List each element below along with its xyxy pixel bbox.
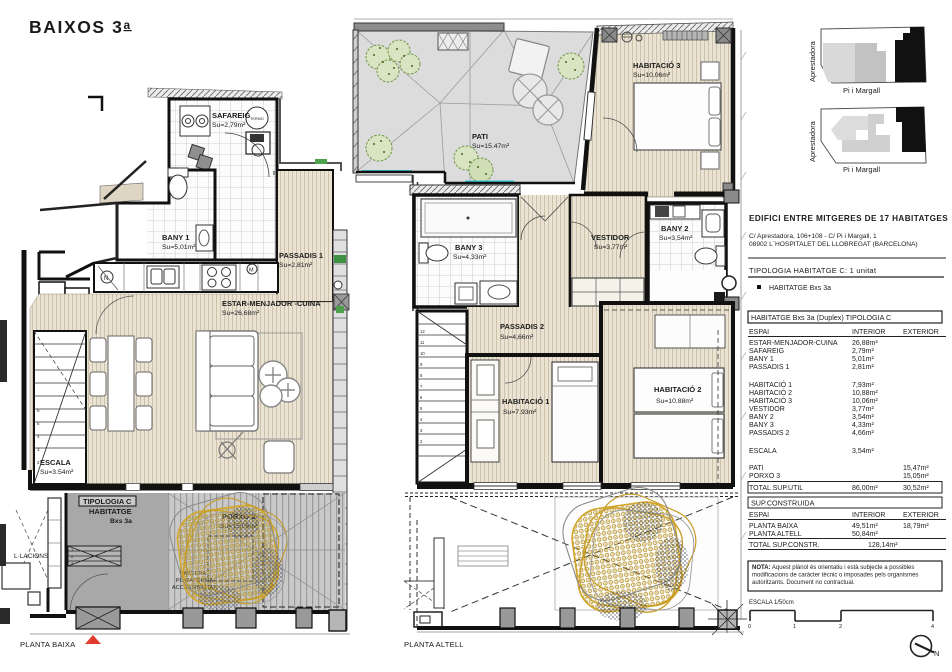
svg-text:ESPAI: ESPAI	[749, 329, 769, 336]
svg-text:SAFAREIG: SAFAREIG	[749, 348, 784, 355]
svg-text:N: N	[934, 649, 939, 658]
svg-text:PASSADIS 1: PASSADIS 1	[749, 364, 789, 371]
svg-text:4: 4	[931, 624, 934, 630]
svg-text:BANY 3: BANY 3	[749, 422, 774, 429]
svg-text:C/ Aprestadora, 106+108 - C/ P: C/ Aprestadora, 106+108 - C/ Pi i Margal…	[749, 233, 877, 240]
svg-text:HABITATGE Bxs 3a (Duplex) TIPO: HABITATGE Bxs 3a (Duplex) TIPOLOGIA C	[751, 313, 891, 322]
svg-text:HABITATGE: HABITATGE	[89, 507, 132, 516]
svg-text:BANY 2: BANY 2	[749, 414, 774, 421]
svg-text:TOTAL SUP.UTIL: TOTAL SUP.UTIL	[749, 485, 803, 492]
svg-text:10,06m²: 10,06m²	[852, 398, 878, 405]
svg-text:modificacions de caràcter tècn: modificacions de caràcter tècnic o impos…	[752, 573, 918, 579]
svg-text:5,01m²: 5,01m²	[852, 356, 874, 363]
svg-text:BANY 1: BANY 1	[162, 233, 189, 242]
svg-text:18,79m²: 18,79m²	[903, 523, 929, 530]
svg-text:HABITACIÓ 2: HABITACIÓ 2	[749, 388, 792, 397]
svg-text:0: 0	[748, 624, 751, 630]
svg-text:PORXO 3: PORXO 3	[749, 473, 780, 480]
svg-text:7,93m²: 7,93m²	[852, 382, 874, 389]
svg-text:EXTERIOR: EXTERIOR	[903, 512, 939, 519]
svg-text:1: 1	[793, 624, 796, 630]
svg-text:ESCALA 1/50cm: ESCALA 1/50cm	[749, 600, 794, 606]
svg-text:Su=3.54m²: Su=3.54m²	[40, 469, 74, 476]
svg-text:15,47m²: 15,47m²	[903, 465, 929, 472]
svg-text:TIPOLOGIA HABITATGE C: 1 unita: TIPOLOGIA HABITATGE C: 1 unitat	[749, 266, 876, 275]
svg-text:HABITATGE Bxs 3a: HABITATGE Bxs 3a	[769, 285, 831, 292]
svg-text:PATI: PATI	[472, 132, 488, 141]
svg-text:BAIXOS 3a: BAIXOS 3a	[29, 17, 132, 37]
svg-text:15,05m²: 15,05m²	[903, 473, 929, 480]
svg-text:PASSADIS 1: PASSADIS 1	[279, 251, 323, 260]
svg-text:26,88m²: 26,88m²	[852, 340, 878, 347]
svg-text:3,77m²: 3,77m²	[852, 406, 874, 413]
svg-text:NOTA: Aquest plànol és orienta: NOTA: Aquest plànol és orientatiu i està…	[752, 565, 914, 571]
svg-text:128,14m²: 128,14m²	[868, 542, 898, 549]
svg-text:INTERIOR: INTERIOR	[852, 512, 885, 519]
svg-text:Su=2,79m²: Su=2,79m²	[212, 122, 246, 129]
svg-text:SAFAREIG: SAFAREIG	[212, 111, 251, 120]
svg-text:50,84m²: 50,84m²	[852, 531, 878, 538]
svg-text:Su=3,54m²: Su=3,54m²	[659, 235, 693, 242]
svg-text:Pi i Margall: Pi i Margall	[843, 165, 880, 174]
svg-text:HABITACIÓ 1: HABITACIÓ 1	[749, 380, 792, 389]
svg-text:BANY 2: BANY 2	[661, 224, 688, 233]
svg-text:HABITACIÓ 1: HABITACIÓ 1	[502, 397, 549, 406]
svg-text:Su=2,81m²: Su=2,81m²	[279, 262, 313, 269]
svg-text:12: 12	[420, 329, 425, 334]
svg-text:3,54m²: 3,54m²	[852, 448, 874, 455]
svg-text:2,81m²: 2,81m²	[852, 364, 874, 371]
svg-text:PLANTA BAIXA: PLANTA BAIXA	[749, 523, 798, 530]
svg-text:M: M	[249, 268, 254, 274]
svg-text:08902 L´HOSPITALET DEL LLOBREG: 08902 L´HOSPITALET DEL LLOBREGAT (BARCEL…	[749, 241, 918, 248]
svg-text:Su=10.88m²: Su=10.88m²	[656, 398, 694, 405]
svg-text:Bxs 3a: Bxs 3a	[110, 518, 132, 525]
svg-text:Su=4,66m²: Su=4,66m²	[500, 334, 534, 341]
svg-text:HABITACIÓ 2: HABITACIÓ 2	[654, 385, 701, 394]
svg-text:PLANTA ALTELL: PLANTA ALTELL	[404, 640, 464, 649]
svg-text:4,66m²: 4,66m²	[852, 430, 874, 437]
svg-text:Aprestadora: Aprestadora	[808, 120, 817, 162]
svg-text:BANY 1: BANY 1	[749, 356, 774, 363]
svg-text:86,00m²: 86,00m²	[852, 485, 878, 492]
svg-text:4,33m²: 4,33m²	[852, 422, 874, 429]
svg-text:TIPOLOGIA C: TIPOLOGIA C	[83, 497, 132, 506]
svg-text:L·LACIONS: L·LACIONS	[14, 553, 49, 560]
svg-text:ESTAR-MENJADOR -CUINA: ESTAR-MENJADOR -CUINA	[222, 299, 321, 308]
svg-text:Su=7.93m²: Su=7.93m²	[503, 409, 537, 416]
svg-text:30,52m²: 30,52m²	[903, 485, 929, 492]
svg-text:ESCALA: ESCALA	[749, 448, 777, 455]
svg-text:Su=26,68m²: Su=26,68m²	[222, 310, 260, 317]
svg-text:BANY 3: BANY 3	[455, 243, 482, 252]
svg-text:Pi i Margall: Pi i Margall	[843, 86, 880, 95]
svg-text:ESPAI: ESPAI	[749, 512, 769, 519]
svg-text:PASSADIS 2: PASSADIS 2	[749, 430, 789, 437]
svg-text:PASSADIS 2: PASSADIS 2	[500, 322, 544, 331]
svg-text:10,88m²: 10,88m²	[852, 390, 878, 397]
svg-text:ESTAR-MENJADOR-CUINA: ESTAR-MENJADOR-CUINA	[749, 340, 838, 347]
svg-text:3,54m²: 3,54m²	[852, 414, 874, 421]
svg-text:TERMO: TERMO	[250, 117, 264, 121]
svg-text:ESCALA: ESCALA	[40, 458, 71, 467]
svg-text:PLANTA ALTELL: PLANTA ALTELL	[749, 531, 802, 538]
svg-text:TOTAL SUP.CONSTR.: TOTAL SUP.CONSTR.	[749, 542, 820, 549]
svg-text:PLANTA BAIXA: PLANTA BAIXA	[20, 640, 76, 649]
svg-text:EDIFICI ENTRE MITGERES DE 17 H: EDIFICI ENTRE MITGERES DE 17 HABITATGES	[749, 214, 948, 223]
svg-text:HABITACIÓ 3: HABITACIÓ 3	[633, 61, 680, 70]
svg-text:EXTERIOR: EXTERIOR	[903, 329, 939, 336]
svg-text:HABITACIÓ 3: HABITACIÓ 3	[749, 396, 792, 405]
svg-text:Su=10,06m²: Su=10,06m²	[633, 72, 671, 79]
svg-text:11: 11	[420, 340, 425, 345]
svg-text:10: 10	[420, 351, 425, 356]
svg-text:2,79m²: 2,79m²	[852, 348, 874, 355]
svg-text:49,51m²: 49,51m²	[852, 523, 878, 530]
svg-text:N: N	[104, 276, 108, 282]
svg-text:SUP.CONSTRUIDA: SUP.CONSTRUIDA	[751, 499, 815, 508]
svg-text:VESTIDOR: VESTIDOR	[591, 233, 630, 242]
svg-text:INTERIOR: INTERIOR	[852, 329, 885, 336]
svg-text:Aprestadora: Aprestadora	[808, 40, 817, 82]
svg-text:2: 2	[839, 624, 842, 630]
svg-text:Su=4,33m²: Su=4,33m²	[453, 254, 487, 261]
svg-text:Su=5,01m²: Su=5,01m²	[162, 244, 196, 251]
svg-text:Su=15.47m²: Su=15.47m²	[472, 143, 510, 150]
svg-text:PATI: PATI	[749, 465, 764, 472]
svg-text:VESTIDOR: VESTIDOR	[749, 406, 785, 413]
svg-text:autoritzants. Document no cont: autoritzants. Document no contractual.	[752, 580, 855, 586]
